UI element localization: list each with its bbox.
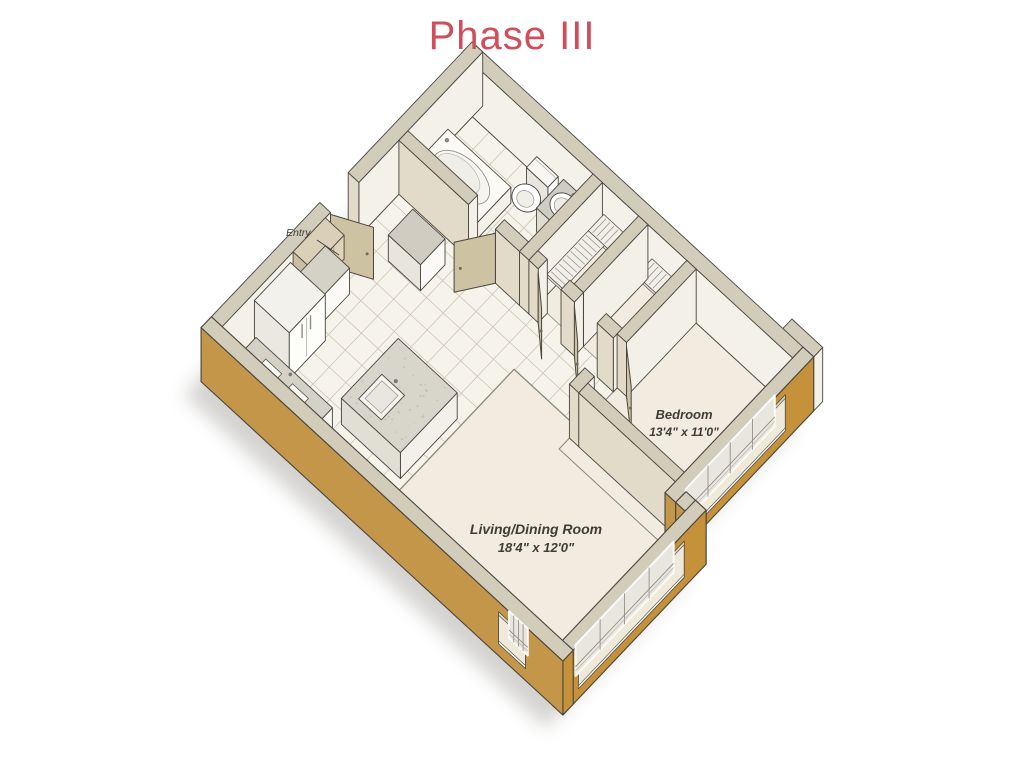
entry-label: Entry [286,226,311,240]
bathroom-door [454,233,495,292]
bedroom-label: Bedroom 13'4" x 11'0" [649,406,719,440]
living-room-label: Living/Dining Room 18'4" x 12'0" [470,520,602,556]
floorplan-page: Phase III Entry Bedroom 13'4" x 11'0" Li… [0,0,1024,768]
living-room-dimensions: 18'4" x 12'0" [470,539,602,557]
living-room-name: Living/Dining Room [470,520,602,539]
floorplan-canvas [0,0,1024,768]
bedroom-name: Bedroom [649,406,719,424]
bedroom-dimensions: 13'4" x 11'0" [649,424,719,440]
page-title: Phase III [0,14,1024,59]
